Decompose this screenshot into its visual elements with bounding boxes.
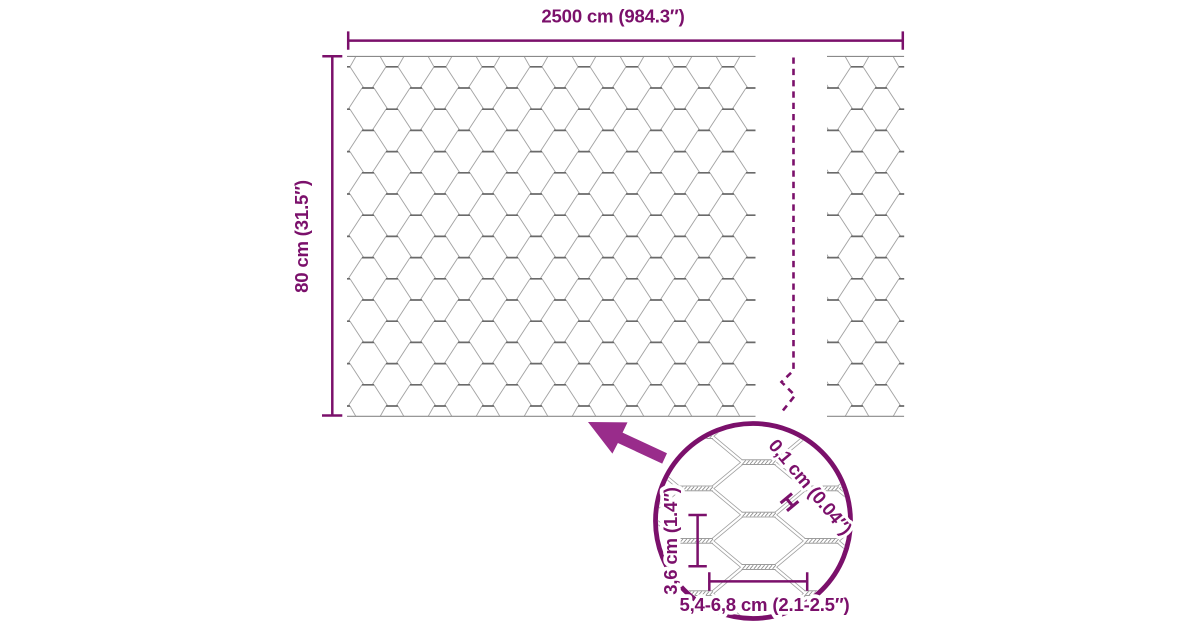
- svg-text:5,4-6,8 cm (2.1-2.5″): 5,4-6,8 cm (2.1-2.5″): [679, 594, 849, 615]
- svg-text:80 cm (31.5″): 80 cm (31.5″): [291, 180, 312, 293]
- svg-text:2500 cm (984.3″): 2500 cm (984.3″): [541, 5, 684, 26]
- svg-text:3,6 cm (1.4″): 3,6 cm (1.4″): [660, 487, 681, 595]
